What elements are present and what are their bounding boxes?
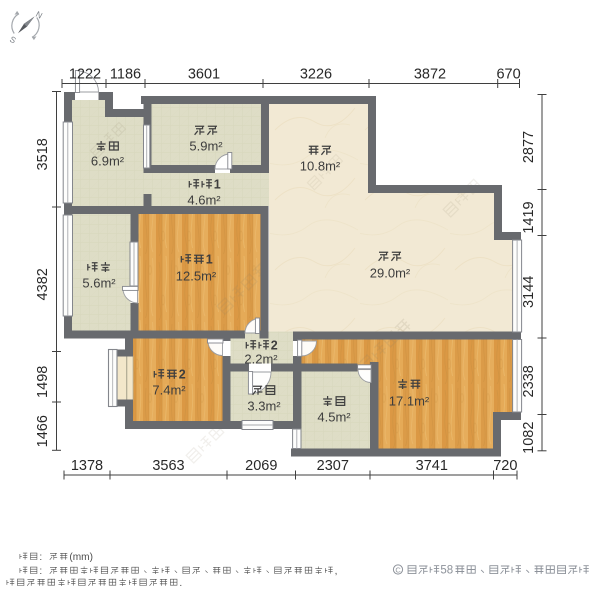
svg-text:1082: 1082: [521, 422, 537, 454]
svg-text:N: N: [34, 9, 44, 21]
svg-text:1378: 1378: [71, 458, 103, 474]
svg-text:2: 2: [271, 339, 278, 353]
svg-text:,: ,: [335, 566, 338, 577]
svg-text:12.5m²: 12.5m²: [176, 269, 217, 284]
svg-text:(mm): (mm): [69, 552, 93, 563]
svg-text:4.5m²: 4.5m²: [317, 410, 351, 425]
svg-text:1186: 1186: [110, 67, 141, 83]
svg-text:2069: 2069: [245, 458, 277, 474]
svg-text:1: 1: [206, 253, 213, 267]
svg-text:S: S: [8, 34, 18, 46]
svg-text:1419: 1419: [521, 201, 537, 233]
svg-text:1222: 1222: [69, 67, 101, 83]
svg-text:2307: 2307: [317, 458, 349, 474]
svg-text:3563: 3563: [152, 458, 184, 474]
svg-text:.: .: [179, 578, 182, 589]
svg-text:1: 1: [214, 178, 221, 192]
svg-text:3144: 3144: [521, 276, 537, 308]
svg-text:5.6m²: 5.6m²: [82, 276, 116, 291]
svg-text:1466: 1466: [35, 415, 51, 447]
svg-text:10.8m²: 10.8m²: [300, 159, 341, 174]
svg-text:1498: 1498: [35, 366, 51, 398]
svg-text:C: C: [395, 566, 401, 575]
svg-text::: :: [39, 552, 42, 563]
svg-text:5.9m²: 5.9m²: [189, 139, 223, 154]
svg-text:2: 2: [179, 368, 186, 382]
svg-text:29.0m²: 29.0m²: [370, 266, 411, 281]
svg-text:7.4m²: 7.4m²: [152, 383, 186, 398]
svg-text:17.1m²: 17.1m²: [389, 394, 430, 409]
svg-text:6.9m²: 6.9m²: [91, 154, 125, 169]
svg-text:2877: 2877: [521, 131, 537, 163]
svg-text:3.3m²: 3.3m²: [247, 399, 281, 414]
svg-text:3872: 3872: [414, 67, 446, 83]
svg-text:58: 58: [440, 565, 453, 577]
svg-text::: :: [39, 566, 42, 577]
svg-text:3741: 3741: [416, 458, 448, 474]
svg-text:4.6m²: 4.6m²: [187, 193, 221, 208]
svg-text:4382: 4382: [35, 268, 51, 300]
svg-text:3226: 3226: [300, 67, 332, 83]
svg-text:2.2m²: 2.2m²: [244, 352, 278, 367]
svg-text:670: 670: [496, 67, 520, 83]
svg-text:3518: 3518: [35, 138, 51, 170]
svg-text:3601: 3601: [188, 67, 220, 83]
svg-text:720: 720: [493, 458, 517, 474]
svg-text:2338: 2338: [521, 365, 537, 397]
